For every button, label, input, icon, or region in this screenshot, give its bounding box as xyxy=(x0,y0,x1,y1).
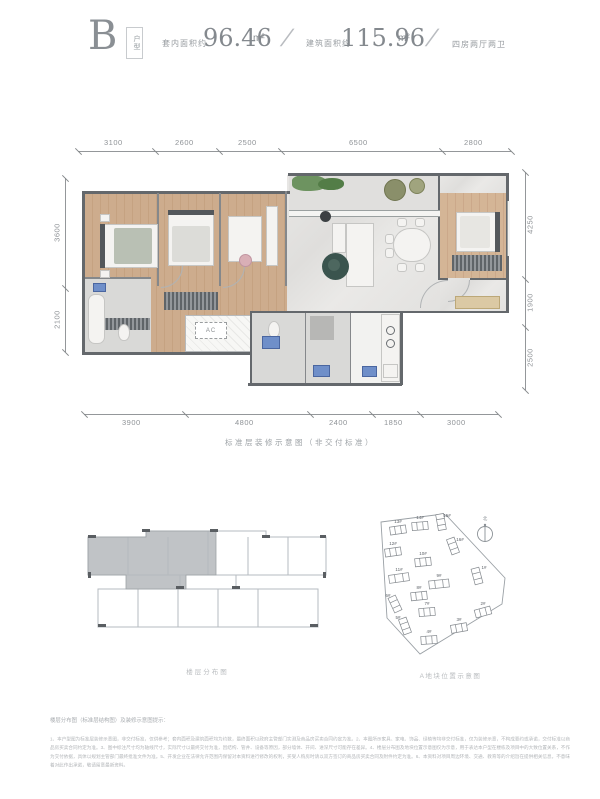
floor-diagram-caption: 楼层分布图 xyxy=(80,666,335,676)
nightstand-icon xyxy=(100,214,110,222)
dining-chair-icon xyxy=(385,248,394,258)
window-band xyxy=(507,201,510,256)
building-label: 10# xyxy=(419,551,427,556)
basin-icon xyxy=(313,365,330,377)
dim-label: 3100 xyxy=(104,138,123,147)
floor-diagram-svg xyxy=(80,523,335,648)
building-label: 9# xyxy=(436,573,442,578)
fridge-icon xyxy=(383,364,398,378)
compass-icon: 北 xyxy=(478,515,493,542)
headboard-icon xyxy=(495,212,500,252)
nightstand-icon xyxy=(100,270,110,278)
building-label: 16# xyxy=(456,537,464,542)
partition xyxy=(85,277,151,279)
window-band xyxy=(289,210,440,217)
basin-icon xyxy=(362,366,377,377)
partition xyxy=(219,193,221,286)
building-label: 6# xyxy=(385,593,391,598)
dim-label: 2500 xyxy=(526,341,535,375)
headboard-icon xyxy=(168,210,214,215)
wall xyxy=(288,173,509,176)
floor-distribution-diagram: 楼层分布图 xyxy=(80,523,335,648)
planter-icon xyxy=(384,179,406,201)
building-label: 13# xyxy=(394,519,402,524)
unit-type-tag: 户型 xyxy=(126,27,143,59)
cooktop-burner-icon xyxy=(386,326,395,335)
site-plan: 北 13# 14# 15# 16# 12# 10# xyxy=(363,508,538,660)
indoor-area-label: 套内面积约 xyxy=(162,38,207,49)
wall xyxy=(400,313,403,385)
headboard-icon xyxy=(100,224,105,268)
wall xyxy=(470,278,508,280)
basin-icon xyxy=(93,283,106,292)
entry-floor xyxy=(440,175,506,193)
dim-label: 1900 xyxy=(526,286,535,320)
floorplan-brochure-page: { "header": { "unit_letter": "B", "unit_… xyxy=(0,0,600,799)
site-plan-caption: A地块位置示意图 xyxy=(363,670,538,680)
building-label: 4# xyxy=(426,629,432,634)
site-plan-svg: 北 13# 14# 15# 16# 12# 10# xyxy=(363,508,538,660)
disclaimer: 楼层分布图（标准层结构图）及装修示意图提示： 1、本户型图为标准层装修示意图，非… xyxy=(50,716,570,796)
wall xyxy=(248,383,402,386)
cooktop-burner-icon xyxy=(386,339,395,348)
dining-chair-icon xyxy=(397,263,407,272)
dim-line xyxy=(84,414,498,415)
wall xyxy=(438,175,440,278)
dining-chair-icon xyxy=(415,263,425,272)
plan-caption: 标准层装修示意图（非交付标准） xyxy=(0,437,600,448)
disclaimer-body: 1、本户型图为标准层装修示意图，非交付标准，仅供参考；套内面积及建筑面积均为约数… xyxy=(50,735,570,770)
unit-letter: B xyxy=(88,16,117,56)
building-label: 11# xyxy=(395,567,403,572)
sofa-icon xyxy=(346,223,374,287)
blanket-icon xyxy=(172,226,210,262)
building-label: 12# xyxy=(389,541,397,546)
dim-label: 2800 xyxy=(464,138,483,147)
dim-label: 6500 xyxy=(349,138,368,147)
building-label: 14# xyxy=(416,515,424,520)
wall xyxy=(250,313,252,385)
wall xyxy=(82,191,85,355)
dim-label: 1850 xyxy=(384,418,403,427)
partition xyxy=(285,191,287,286)
wall xyxy=(250,311,509,313)
build-area-value: 115.96 xyxy=(341,26,425,50)
build-area-unit: m² xyxy=(398,33,410,44)
disclaimer-title: 楼层分布图（标准层结构图）及装修示意图提示： xyxy=(50,716,362,724)
building-label: 2# xyxy=(480,601,486,606)
shower-icon xyxy=(310,316,334,340)
header: B 户型 套内面积约 96.46 m² / 建筑面积约 115.96 m² / … xyxy=(0,0,600,80)
dim-label: 2100 xyxy=(53,303,62,337)
highlighted-unit xyxy=(88,531,216,589)
sofa-chaise-icon xyxy=(332,223,346,253)
compass-label: 北 xyxy=(483,515,488,522)
dining-chair-icon xyxy=(397,218,407,227)
dim-label: 2400 xyxy=(329,418,348,427)
dim-label: 4250 xyxy=(526,208,535,242)
building-label: 1# xyxy=(481,565,487,570)
dim-label: 2500 xyxy=(238,138,257,147)
dim-line xyxy=(78,151,511,152)
dim-label: 3900 xyxy=(122,418,141,427)
shoe-cabinet-icon xyxy=(455,296,500,309)
dim-label: 4800 xyxy=(235,418,254,427)
building-label: 3# xyxy=(456,617,462,622)
blanket-icon xyxy=(114,228,152,264)
dim-label: 2600 xyxy=(175,138,194,147)
coffee-table-icon xyxy=(328,259,340,271)
dim-label: 3600 xyxy=(53,216,62,250)
dimension-right: 4250 1900 2500 xyxy=(518,172,536,390)
floor-lamp-icon xyxy=(320,211,331,222)
building-label: 15# xyxy=(443,513,451,518)
toilet-icon xyxy=(118,324,130,341)
wardrobe-icon xyxy=(164,292,218,310)
dining-chair-icon xyxy=(415,218,425,227)
separator-slash-2: / xyxy=(424,25,438,53)
wall xyxy=(82,352,252,355)
building-label: 5# xyxy=(395,615,401,620)
layout-description: 四房两厅两卫 xyxy=(452,39,506,50)
washer-icon xyxy=(262,336,280,349)
building-label: 7# xyxy=(424,601,430,606)
separator-slash: / xyxy=(279,25,293,53)
dining-table-icon xyxy=(393,228,431,262)
wall xyxy=(82,191,290,194)
planter-icon xyxy=(409,178,425,194)
cabinet-icon xyxy=(266,206,278,266)
dimension-bottom: 3900 4800 2400 1850 3000 xyxy=(84,408,498,430)
dim-label: 3000 xyxy=(447,418,466,427)
partition xyxy=(350,313,351,383)
bathtub-icon xyxy=(88,294,105,344)
blanket-icon xyxy=(460,216,490,248)
dining-chair-icon xyxy=(385,234,394,244)
chair-icon xyxy=(239,254,252,267)
partition xyxy=(305,313,306,383)
dimension-left: 3600 2100 xyxy=(56,178,72,352)
dim-line xyxy=(65,178,66,352)
wardrobe-icon xyxy=(452,255,502,271)
plant-icon xyxy=(318,178,344,190)
dimension-top: 3100 2600 2500 6500 2800 xyxy=(78,138,511,154)
building-label: 8# xyxy=(416,585,422,590)
ac-unit-label: AC xyxy=(195,322,227,339)
indoor-area-unit: m² xyxy=(253,33,265,44)
floor-plan: AC xyxy=(78,166,514,394)
